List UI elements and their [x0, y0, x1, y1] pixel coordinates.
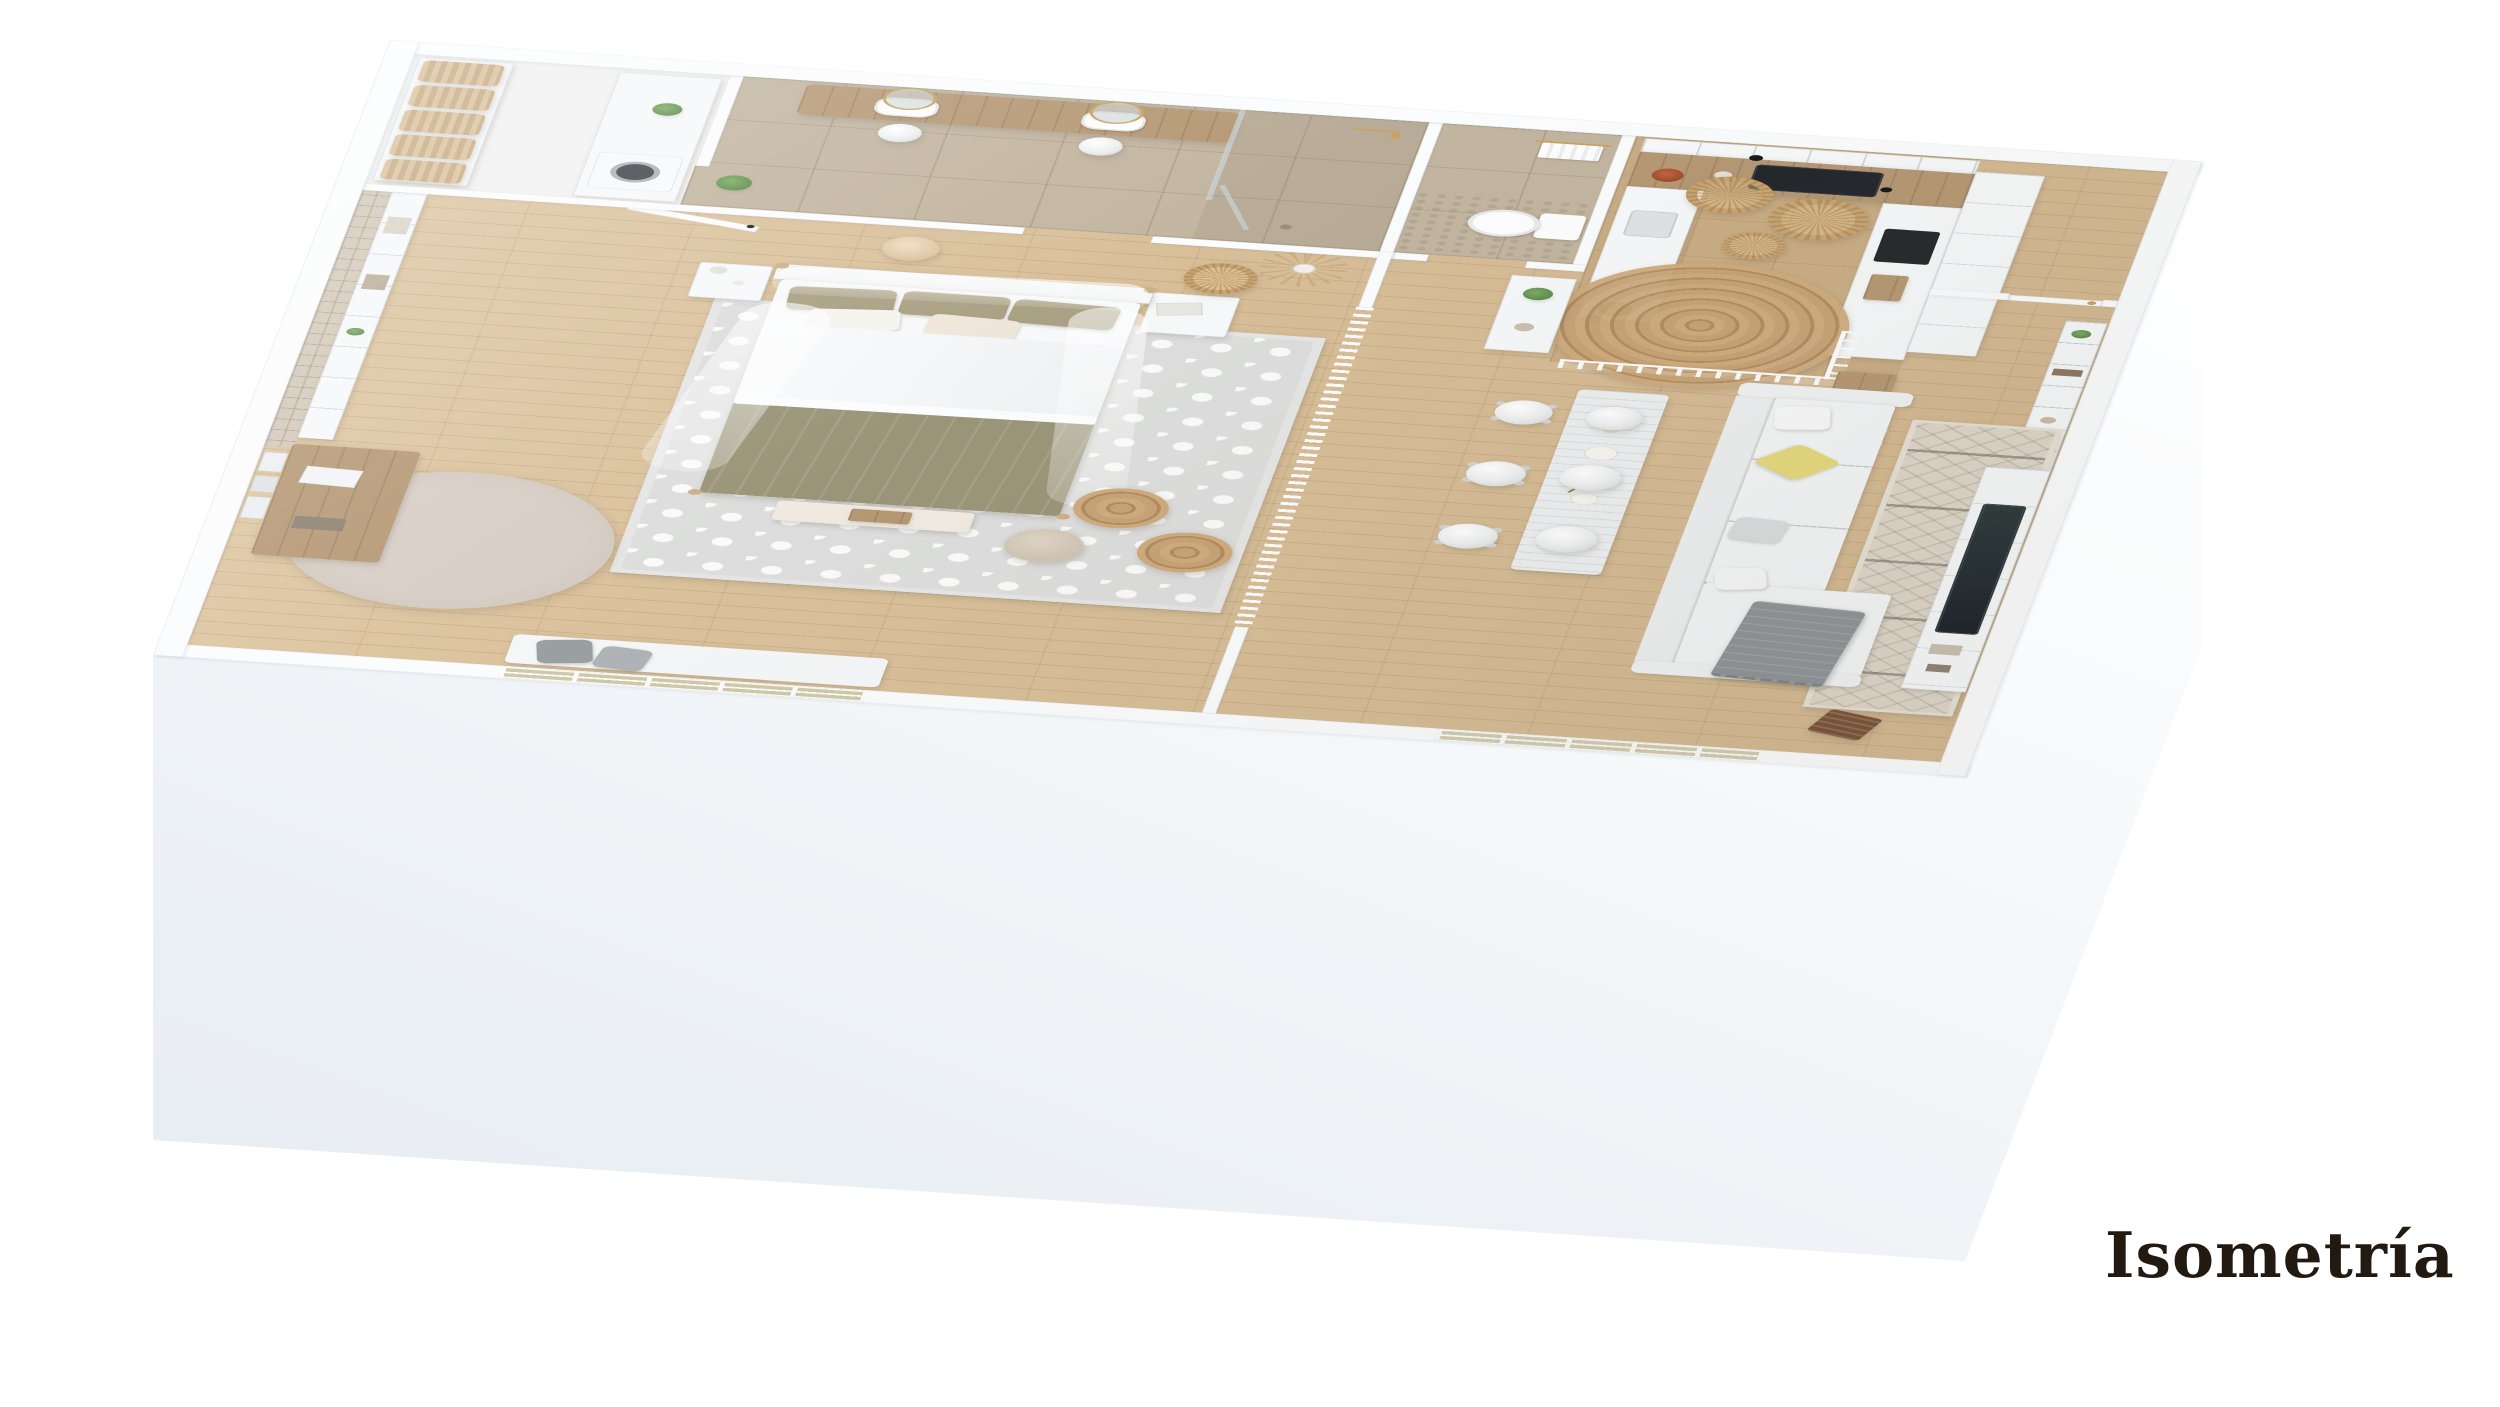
tv-console-decor — [1928, 644, 1963, 656]
white-sofa-pillow — [1713, 568, 1767, 591]
peninsula-sink — [1622, 210, 1679, 239]
caption-title: Isometría — [2105, 1218, 2455, 1292]
apartment-floor-plan — [153, 40, 2202, 776]
nightstand-magazine — [1157, 303, 1201, 315]
white-sofa-pillow — [1774, 406, 1831, 430]
gray-pillow — [536, 640, 593, 664]
toilet-tank — [1532, 213, 1587, 241]
isometric-apartment-render: Isometría — [0, 0, 2500, 1407]
tv-console-decor — [1925, 664, 1951, 673]
nightstand-left — [687, 262, 773, 301]
